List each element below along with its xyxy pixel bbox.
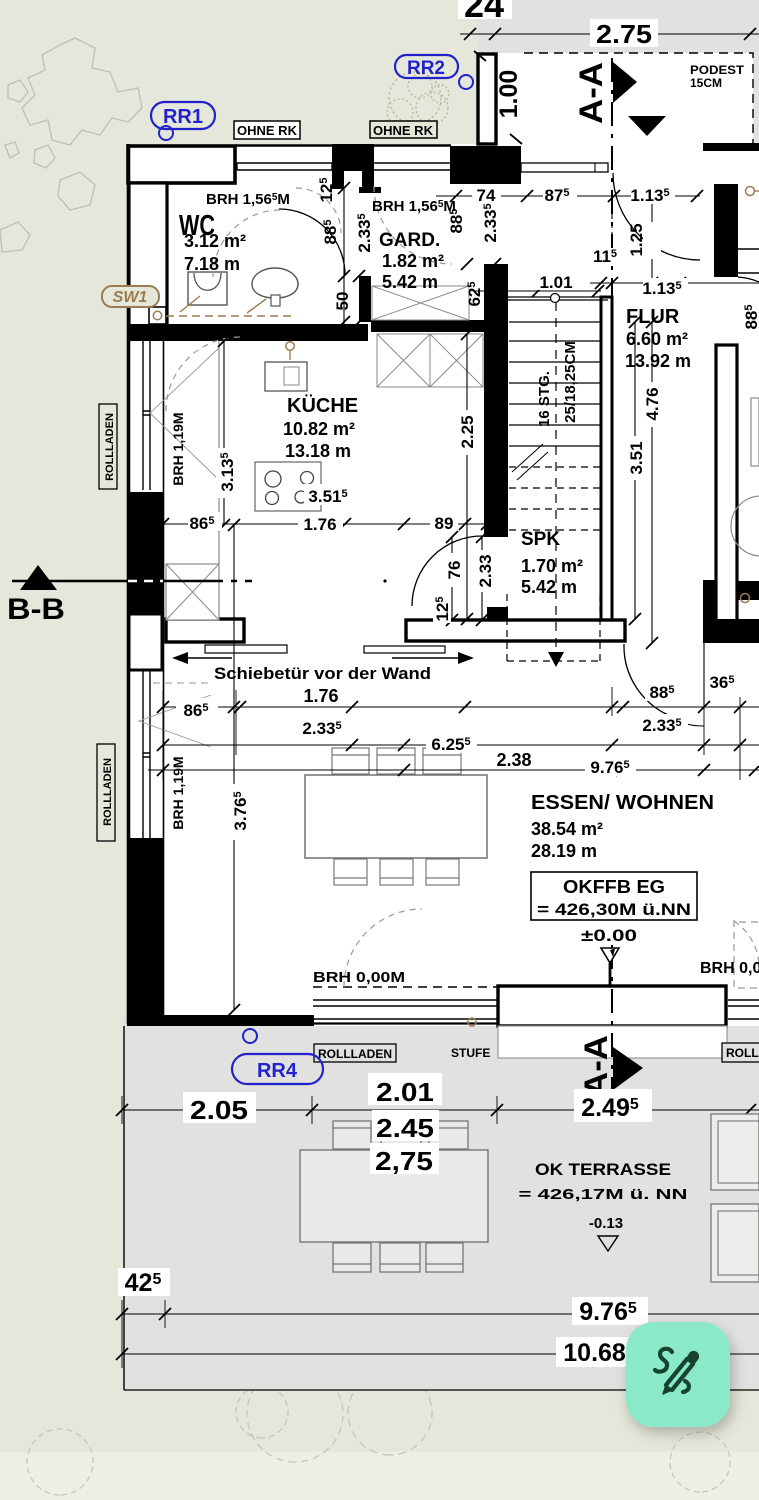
svg-text:4.76: 4.76 <box>643 387 662 420</box>
svg-text:13.92 m: 13.92 m <box>625 351 691 371</box>
svg-text:BRH 1,19M: BRH 1,19M <box>170 412 186 485</box>
svg-text:SPK: SPK <box>521 529 560 550</box>
svg-text:2.38: 2.38 <box>496 750 531 770</box>
svg-text:RR4: RR4 <box>257 1060 298 1082</box>
svg-text:28.19 m: 28.19 m <box>531 841 597 861</box>
svg-text:ROLLL: ROLLL <box>726 1046 759 1060</box>
svg-text:BRH 0,00M: BRH 0,00M <box>700 960 759 977</box>
svg-text:= 426,17M ü. NN: = 426,17M ü. NN <box>519 1186 688 1203</box>
svg-text:Schiebetür vor der Wand: Schiebetür vor der Wand <box>214 664 431 683</box>
svg-text:1.76: 1.76 <box>303 686 338 706</box>
svg-text:7.18 m: 7.18 m <box>184 254 240 274</box>
svg-text:STUFE: STUFE <box>451 1046 490 1060</box>
svg-text:3.51: 3.51 <box>627 441 646 474</box>
svg-text:6.60 m²: 6.60 m² <box>626 329 688 349</box>
svg-text:RR2: RR2 <box>407 58 445 79</box>
svg-text:ROLLLADEN: ROLLLADEN <box>104 413 116 481</box>
svg-text:2.01: 2.01 <box>376 1077 434 1107</box>
svg-text:2.05: 2.05 <box>190 1095 248 1125</box>
svg-text:2.45: 2.45 <box>376 1113 434 1143</box>
svg-text:A-A: A-A <box>578 1035 614 1097</box>
svg-text:A-A: A-A <box>573 62 609 124</box>
svg-text:5.42 m: 5.42 m <box>521 577 577 597</box>
svg-text:50: 50 <box>333 292 352 311</box>
svg-text:ROLLLADEN: ROLLLADEN <box>318 1047 392 1061</box>
svg-text:1.76: 1.76 <box>303 515 336 534</box>
svg-text:1.70 m²: 1.70 m² <box>521 556 583 576</box>
svg-text:25/18,25CM: 25/18,25CM <box>562 341 579 423</box>
svg-text:OKFFB EG: OKFFB EG <box>563 877 665 897</box>
svg-text:5.42 m: 5.42 m <box>382 272 438 292</box>
svg-text:BRH 1,565M: BRH 1,565M <box>206 191 290 208</box>
svg-text:3.12 m²: 3.12 m² <box>184 231 246 251</box>
svg-text:OHNE RK: OHNE RK <box>373 123 434 138</box>
svg-text:-0.13: -0.13 <box>589 1215 623 1232</box>
svg-text:±0.00: ±0.00 <box>581 926 637 945</box>
svg-text:GARD.: GARD. <box>379 230 440 251</box>
svg-text:1.00: 1.00 <box>495 70 523 119</box>
svg-text:2.75: 2.75 <box>596 19 652 49</box>
svg-text:ESSEN/ WOHNEN: ESSEN/ WOHNEN <box>531 792 714 814</box>
svg-text:1.25: 1.25 <box>627 223 646 256</box>
svg-text:10.82 m²: 10.82 m² <box>283 419 355 439</box>
svg-text:24: 24 <box>464 0 504 25</box>
svg-text:ROLLLADEN: ROLLLADEN <box>102 758 114 826</box>
svg-text:2.33: 2.33 <box>476 554 495 587</box>
svg-text:= 426,30M ü.NN: = 426,30M ü.NN <box>537 900 691 919</box>
svg-text:76: 76 <box>445 561 464 580</box>
svg-text:RR1: RR1 <box>163 106 203 128</box>
svg-text:2.25: 2.25 <box>458 415 477 448</box>
svg-text:10.685: 10.685 <box>563 1339 635 1367</box>
svg-text:BRH 1,565M: BRH 1,565M <box>372 198 456 215</box>
svg-text:74: 74 <box>477 186 496 205</box>
svg-text:PODEST: PODEST <box>690 63 745 77</box>
svg-text:KÜCHE: KÜCHE <box>287 394 358 417</box>
svg-text:BRH 1,19M: BRH 1,19M <box>170 756 186 829</box>
svg-text:OHNE RK: OHNE RK <box>237 123 298 138</box>
svg-text:BRH 0,00M: BRH 0,00M <box>313 969 405 986</box>
svg-text:13.18 m: 13.18 m <box>285 441 351 461</box>
svg-text:FLUR: FLUR <box>626 306 680 328</box>
svg-text:SW1: SW1 <box>113 289 148 306</box>
svg-text:15CM: 15CM <box>690 76 722 90</box>
svg-text:89: 89 <box>435 514 454 533</box>
svg-text:1.82 m²: 1.82 m² <box>382 251 444 271</box>
svg-text:B-B: B-B <box>7 593 65 626</box>
svg-text:2,75: 2,75 <box>375 1146 433 1176</box>
svg-text:38.54 m²: 38.54 m² <box>531 819 603 839</box>
svg-text:OK TERRASSE: OK TERRASSE <box>535 1160 671 1179</box>
svg-text:1.01: 1.01 <box>539 273 572 292</box>
svg-text:16 STG.: 16 STG. <box>536 371 553 427</box>
